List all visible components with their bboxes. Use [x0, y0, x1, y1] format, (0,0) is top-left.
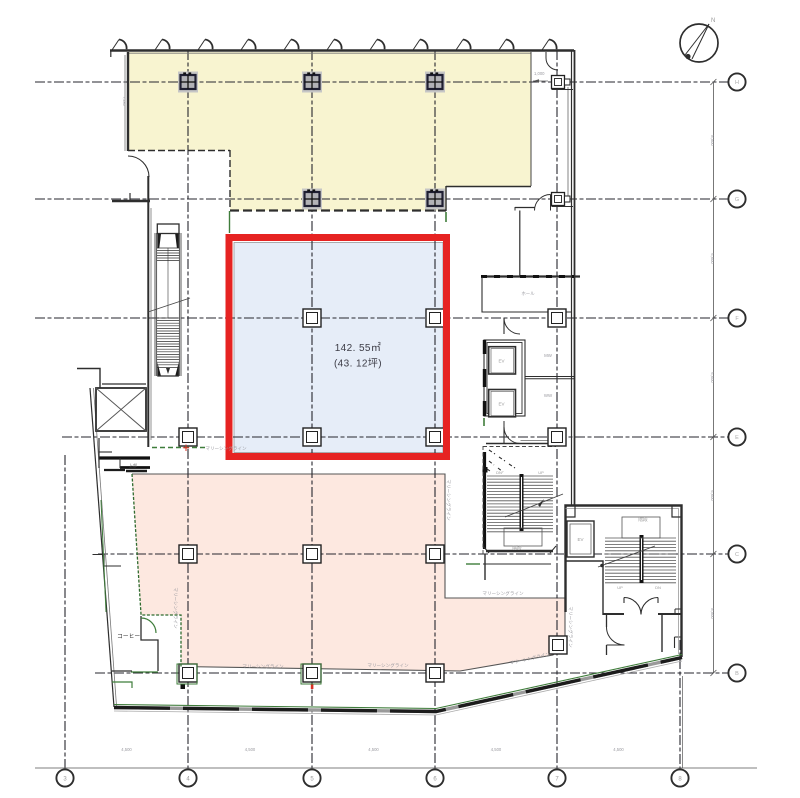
svg-text:マリーシングライン: マリーシングライン — [242, 663, 284, 670]
svg-text:EV: EV — [498, 402, 504, 407]
svg-text:EV: EV — [498, 359, 504, 364]
svg-text:6,600: 6,600 — [710, 372, 715, 383]
svg-text:マリーシングライン: マリーシングライン — [205, 445, 247, 452]
svg-text:UP: UP — [617, 585, 623, 590]
svg-text:H: H — [735, 80, 739, 86]
svg-text:マリーシングライン: マリーシングライン — [567, 606, 574, 648]
svg-text:マリーシングライン: マリーシングライン — [482, 590, 524, 597]
svg-text:6,600: 6,600 — [710, 253, 715, 264]
svg-text:C: C — [735, 552, 739, 558]
svg-text:マリーシングライン: マリーシングライン — [445, 479, 452, 521]
svg-text:階段: 階段 — [512, 545, 522, 552]
svg-text:4,500: 4,500 — [245, 747, 256, 752]
svg-text:B: B — [735, 671, 739, 677]
svg-text:4,500: 4,500 — [491, 747, 502, 752]
svg-text:8,500: 8,500 — [710, 608, 715, 619]
svg-text:142. 55㎡: 142. 55㎡ — [335, 342, 382, 354]
svg-text:MW: MW — [544, 353, 553, 358]
svg-text:4,500: 4,500 — [121, 747, 132, 752]
svg-text:マリーシングライン: マリーシングライン — [367, 662, 409, 669]
svg-text:E: E — [735, 435, 739, 441]
svg-text:4,500: 4,500 — [613, 747, 624, 752]
svg-text:(43. 12坪): (43. 12坪) — [334, 357, 382, 370]
svg-text:6,600: 6,600 — [710, 490, 715, 501]
svg-text:UP: UP — [538, 470, 544, 475]
svg-text:WW: WW — [544, 393, 553, 398]
svg-text:8,500: 8,500 — [710, 135, 715, 146]
svg-text:7,280: 7,280 — [122, 96, 126, 106]
svg-text:EV: EV — [577, 537, 583, 542]
svg-text:マリーシングライン: マリーシングライン — [172, 587, 179, 629]
svg-text:DN: DN — [496, 470, 502, 475]
svg-text:上部: 上部 — [129, 462, 137, 468]
svg-text:1,000: 1,000 — [534, 71, 545, 76]
svg-text:4,500: 4,500 — [368, 747, 379, 752]
svg-text:DN: DN — [655, 585, 661, 590]
svg-text:N: N — [711, 18, 715, 24]
svg-text:階段: 階段 — [638, 516, 648, 523]
svg-text:コーヒー: コーヒー — [117, 633, 140, 640]
svg-text:ホール: ホール — [521, 291, 535, 296]
svg-text:G: G — [735, 197, 739, 203]
